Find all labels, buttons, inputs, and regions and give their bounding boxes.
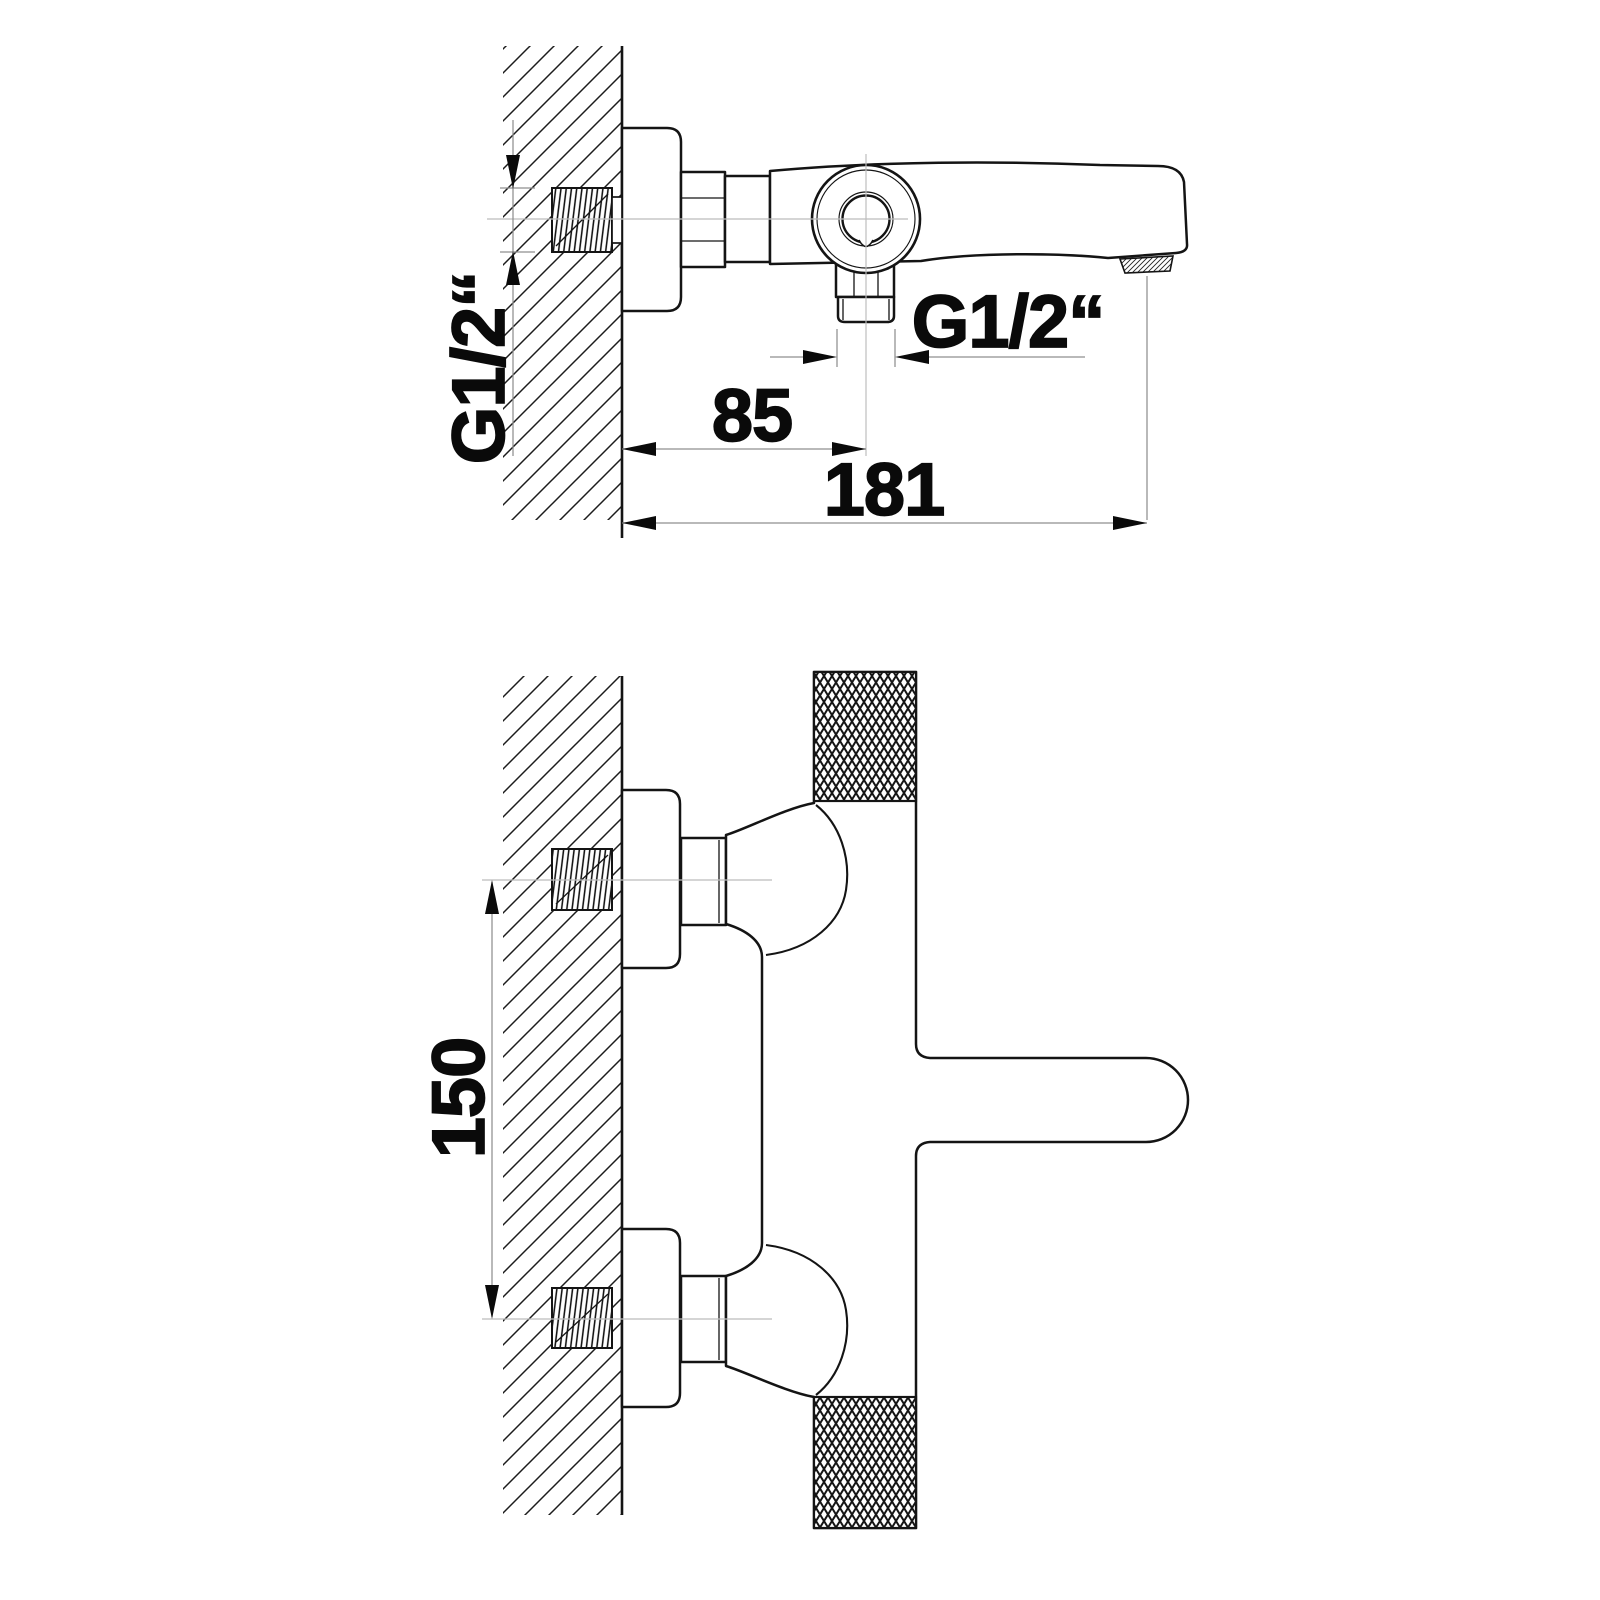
inlet-shank (612, 197, 622, 243)
wall-hatching-top-view (503, 46, 622, 520)
drawing-page: G1/2“ G1/2“ 85 181 (0, 0, 1600, 1600)
arrow-up-icon (485, 880, 499, 914)
arrow-right-icon (803, 350, 837, 364)
mixer-body-front-view (726, 672, 1188, 1528)
arrow-left-icon (622, 516, 656, 530)
arrow-down-icon (485, 1285, 499, 1319)
knurled-handle-upper (814, 672, 916, 801)
arrow-right-icon (1113, 516, 1147, 530)
escutcheon-lower (622, 1229, 680, 1407)
label-wall-to-outlet: 85 (712, 374, 792, 457)
front-view: 150 (417, 672, 1188, 1528)
escutcheon-upper (622, 790, 680, 968)
dim-150: 150 (417, 880, 500, 1319)
dim-outlet-thread: G1/2“ (770, 280, 1104, 367)
label-wall-to-spout-tip: 181 (824, 448, 944, 531)
label-connection-spacing: 150 (417, 1038, 500, 1158)
wall-hatching-front-view (503, 676, 622, 1515)
faucet-dimension-drawing: G1/2“ G1/2“ 85 181 (0, 0, 1600, 1600)
label-inlet-thread: G1/2“ (437, 272, 520, 464)
knurled-handle-lower (814, 1397, 916, 1528)
aerator (1120, 256, 1173, 273)
top-view: G1/2“ G1/2“ 85 181 (437, 46, 1187, 538)
arrow-left-icon (622, 442, 656, 456)
dim-85: 85 (622, 374, 866, 457)
label-outlet-thread: G1/2“ (912, 280, 1104, 363)
